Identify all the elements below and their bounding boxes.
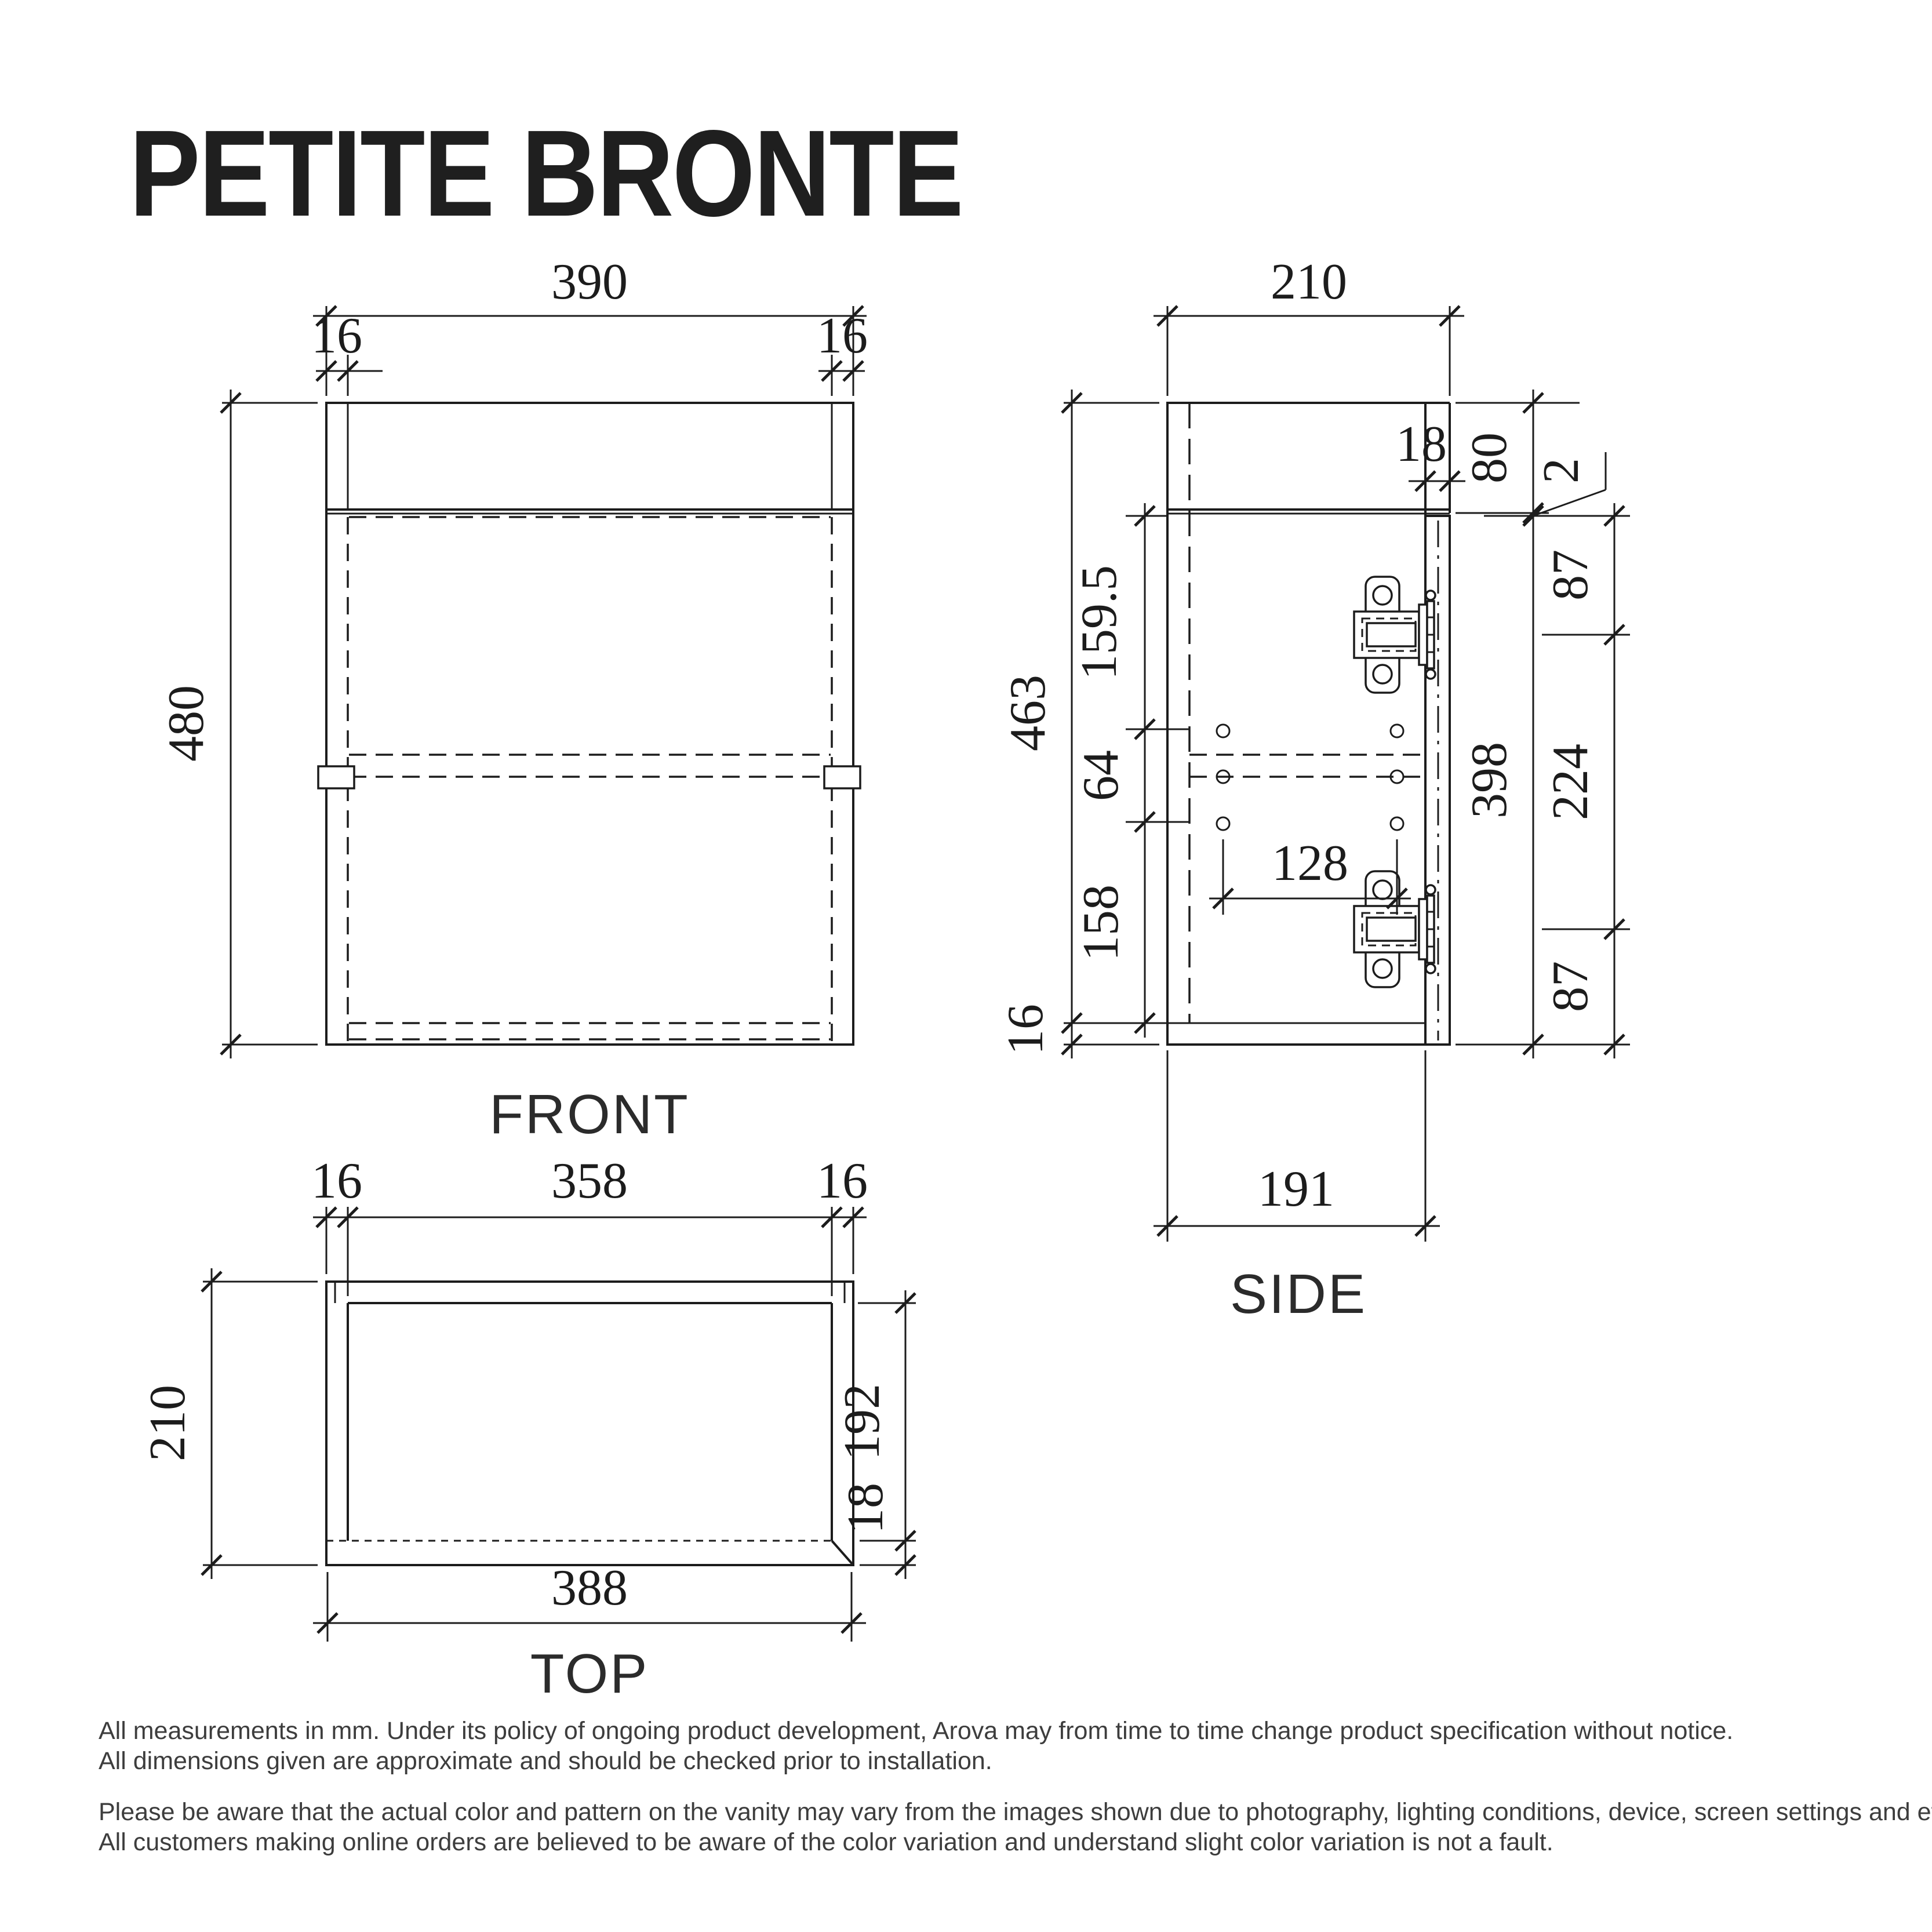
disclaimer: All measurements in mm. Under its policy… — [99, 1717, 1932, 1856]
top-wall-right-dim: 16 — [817, 1153, 868, 1209]
side-hinge-top-dim: 87 — [1542, 550, 1599, 601]
page-title: PETITE BRONTE — [129, 104, 962, 242]
hinge-lower — [1354, 871, 1435, 987]
side-depth-dim: 210 — [1271, 254, 1347, 310]
front-wall-right-dim: 16 — [817, 308, 868, 364]
top-wall-left-dim: 16 — [311, 1153, 362, 1209]
side-hinge-bottom-dim: 87 — [1542, 961, 1599, 1012]
side-shelf-offset-dim: 159.5 — [1071, 565, 1127, 680]
side-door-height-dim: 398 — [1461, 742, 1518, 818]
side-gap-dim: 2 — [1533, 458, 1589, 483]
front-height-dim: 480 — [158, 685, 214, 762]
side-view: 210 18 80 2 398 87 224 87 — [998, 254, 1630, 1325]
side-rail-dim: 80 — [1461, 432, 1518, 483]
side-body-depth-dim: 191 — [1258, 1161, 1334, 1217]
technical-drawing: PETITE BRONTE 390 16 16 — [0, 0, 1932, 1932]
top-inner-depth-dim: 192 — [834, 1384, 890, 1460]
top-overall-width-dim: 388 — [551, 1560, 628, 1616]
top-view-label: TOP — [530, 1643, 649, 1705]
disclaimer-line-3: Please be aware that the actual color an… — [99, 1798, 1932, 1826]
front-wall-left-dim: 16 — [311, 308, 362, 364]
side-hole-spacing-dim: 128 — [1272, 835, 1348, 892]
side-bottom-panel-dim: 16 — [998, 1004, 1054, 1055]
top-depth-dim: 210 — [140, 1385, 196, 1461]
side-door-thickness-dim: 18 — [1396, 416, 1447, 472]
side-view-label: SIDE — [1230, 1263, 1367, 1325]
disclaimer-line-2: All dimensions given are approximate and… — [99, 1747, 992, 1775]
side-below-shelf-dim: 158 — [1073, 885, 1129, 961]
side-shelf-zone-dim: 64 — [1073, 750, 1129, 801]
shelf-bracket-right — [824, 766, 860, 788]
disclaimer-line-4: All customers making online orders are b… — [99, 1828, 1553, 1856]
drawing-sheet: PETITE BRONTE 390 16 16 — [0, 0, 1932, 1932]
front-view-label: FRONT — [489, 1083, 690, 1145]
top-view: 16 358 16 210 192 18 388 TOP — [140, 1153, 916, 1705]
front-width-dim: 390 — [551, 254, 628, 310]
side-carcass-height-dim: 463 — [1000, 675, 1056, 751]
front-view: 390 16 16 480 FRONT — [158, 254, 868, 1145]
disclaimer-line-1: All measurements in mm. Under its policy… — [99, 1717, 1733, 1745]
top-inner-width-dim: 358 — [551, 1153, 628, 1209]
shelf-bracket-left — [318, 766, 354, 788]
side-hinge-spacing-dim: 224 — [1542, 744, 1599, 820]
hinge-upper — [1354, 577, 1435, 693]
top-front-panel-dim: 18 — [838, 1483, 894, 1534]
